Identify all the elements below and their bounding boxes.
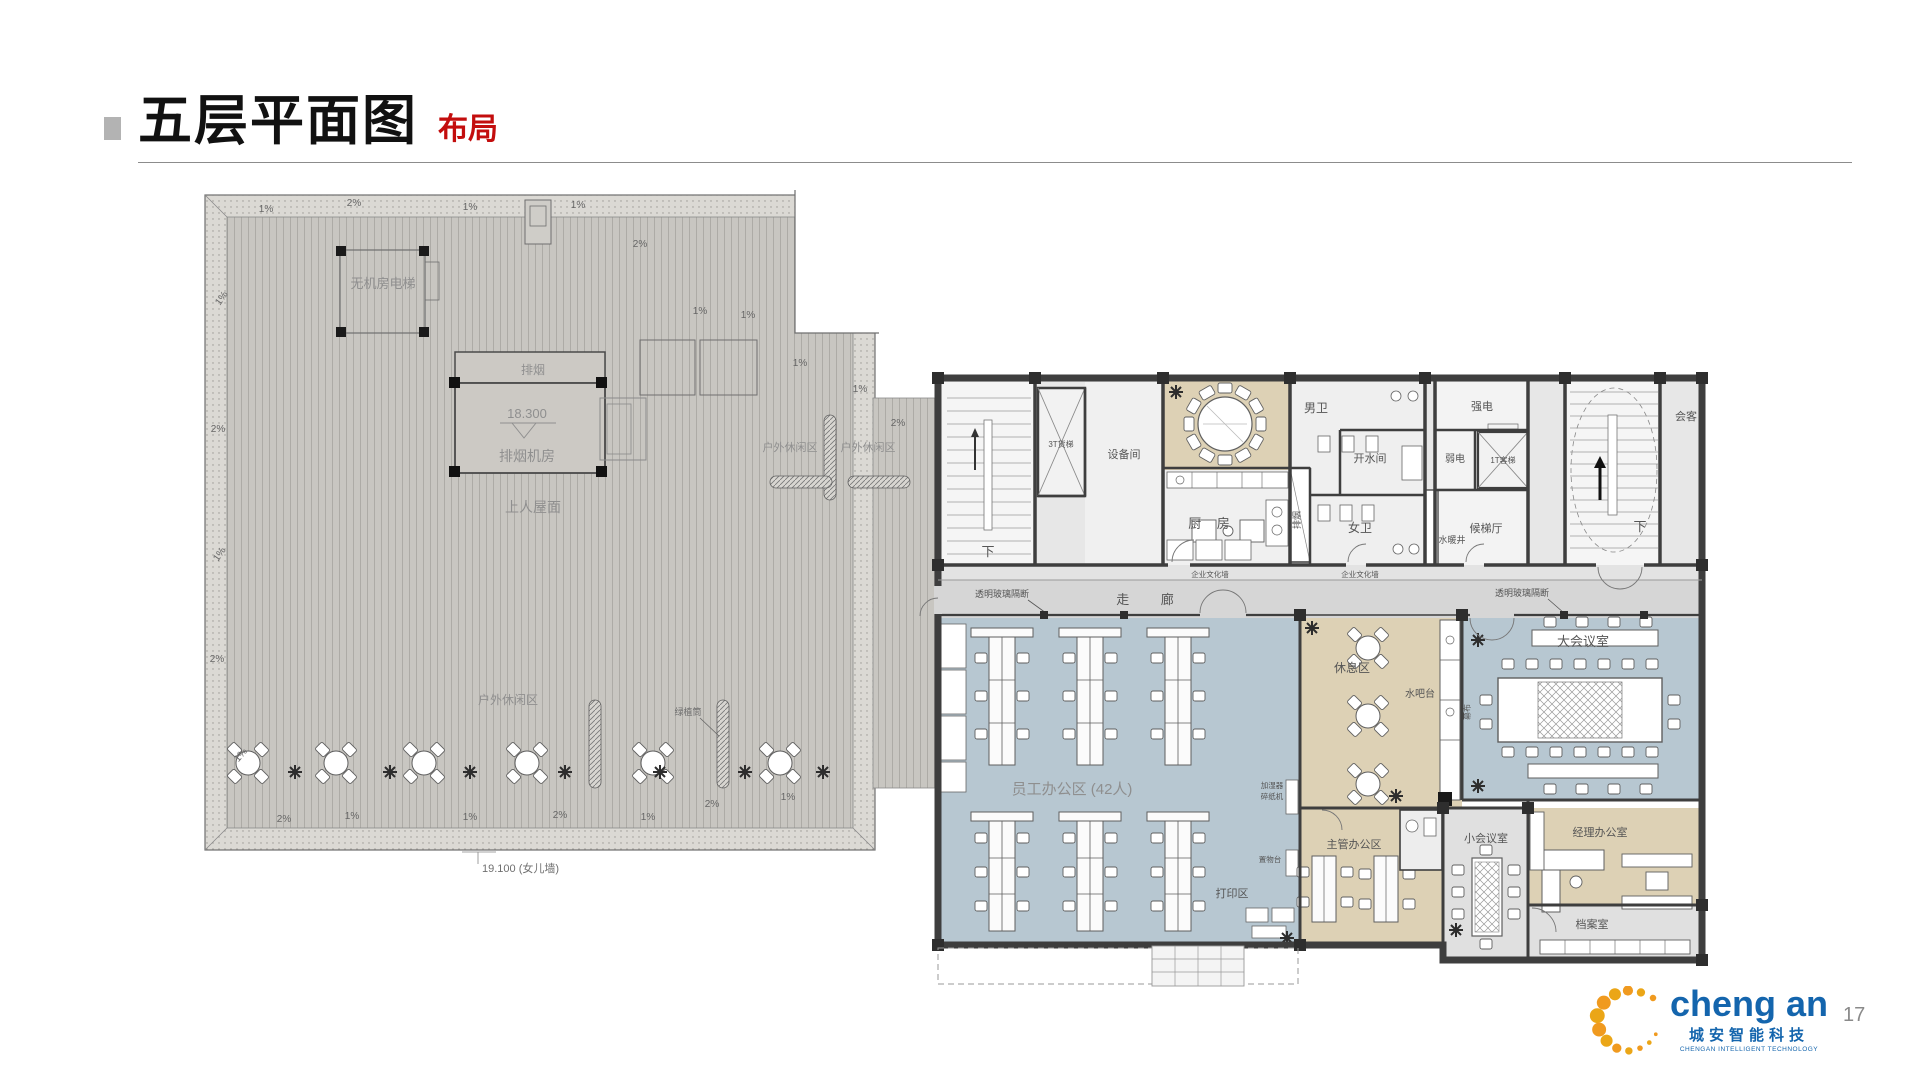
room-label-smoke-vent: 排烟 — [521, 363, 545, 377]
slope-label: 1% — [259, 204, 274, 215]
planter-strip — [848, 476, 910, 488]
parapet-elevation-label: 19.100 (女儿墙) — [482, 861, 559, 875]
room-label-smoke-room: 排烟机房 — [499, 448, 555, 464]
room-label-freight-elevator: 3T货梯 — [1048, 439, 1073, 449]
roof-terrace: 无机房电梯 排烟 18.300 排烟机房 上人屋面 户外休闲区 户外休 — [205, 189, 942, 875]
slope-label: 1% — [345, 811, 360, 822]
room-label-rest-area: 休息区 — [1334, 660, 1370, 675]
slide: 五层平面图 布局 — [0, 0, 1920, 1080]
planter-label: 绿植筒 — [674, 706, 701, 717]
room-label-mrl-elevator: 无机房电梯 — [350, 276, 415, 291]
slope-label: 1% — [641, 812, 656, 823]
room-label-hot-water: 开水间 — [1354, 452, 1387, 465]
lower-parapet — [938, 946, 1298, 986]
slope-label: 1% — [463, 812, 478, 823]
slope-label: 2% — [891, 418, 906, 429]
roof-walkable-label: 上人屋面 — [505, 499, 561, 515]
planter-strip — [770, 476, 832, 488]
room-label-mens-wc: 男卫 — [1304, 401, 1328, 415]
stairs-down-label: 下 — [981, 544, 994, 559]
slope-label: 2% — [347, 198, 362, 209]
culture-wall-label: 企业文化墙 — [1341, 569, 1379, 579]
slope-label: 1% — [463, 202, 478, 213]
equip-label-humidifier: 加湿器 — [1261, 780, 1284, 790]
slope-label: 1% — [853, 384, 868, 395]
outdoor-leisure-label: 户外休闲区 — [478, 692, 538, 707]
room-label-strong-power: 强电 — [1471, 400, 1493, 413]
room-label-large-meeting: 大会议室 — [1557, 634, 1609, 649]
logo-company-cn: 城安智能科技 — [1689, 1024, 1809, 1045]
outdoor-leisure-label: 户外休闲区 — [841, 440, 896, 454]
room-label-print-area: 打印区 — [1216, 886, 1249, 900]
room-label-manager: 经理办公室 — [1573, 825, 1628, 839]
roof-extension — [873, 398, 942, 788]
slope-label: 2% — [210, 654, 225, 665]
room-label-equipment: 设备间 — [1108, 447, 1141, 461]
outdoor-leisure-label: 户外休闲区 — [763, 440, 818, 454]
reception-label: 会客 — [1675, 409, 1697, 423]
roof-elevation-label: 18.300 — [507, 406, 547, 421]
stairs-down-label: 下 — [1633, 519, 1646, 534]
room-label-elevator-lobby: 候梯厅 — [1470, 521, 1503, 535]
room-label-weak-power: 弱电 — [1445, 452, 1465, 465]
slope-label: 1% — [741, 310, 756, 321]
room-label-passenger-elevator: 1T客梯 — [1490, 455, 1515, 465]
culture-wall-label: 企业文化墙 — [1191, 569, 1229, 579]
room-label-staff-office: 员工办公区 (42人) — [1012, 781, 1133, 798]
office-floor: 3T货梯 设备间 — [920, 372, 1708, 986]
room-label-womens-wc: 女卫 — [1348, 520, 1372, 535]
slope-label: 1% — [781, 792, 796, 803]
logo-swirl-icon — [1588, 986, 1666, 1062]
slope-label: 2% — [211, 424, 226, 435]
slope-label: 2% — [633, 239, 648, 250]
corridor-area — [938, 580, 1702, 618]
floor-plan: 无机房电梯 排烟 18.300 排烟机房 上人屋面 户外休闲区 户外休 — [0, 0, 1920, 1080]
page-number: 17 — [1843, 1004, 1865, 1027]
rest-area — [1300, 618, 1462, 808]
smoke-duct: 排烟 — [1290, 468, 1310, 562]
slope-label: 2% — [553, 810, 568, 821]
parapet-elevation-callout: 19.100 (女儿墙) — [462, 852, 559, 875]
equip-label-shredder: 碎纸机 — [1261, 791, 1284, 801]
freight-elevator: 3T货梯 — [1038, 388, 1085, 496]
room-label-small-meeting: 小会议室 — [1464, 831, 1508, 845]
room-label-archive: 档案室 — [1576, 917, 1609, 931]
logo-brand-text: cheng an — [1670, 986, 1828, 1022]
roof-hatch-box — [525, 200, 551, 244]
equip-label-shelf: 置物台 — [1259, 854, 1282, 864]
duct-label-smoke: 排烟 — [1291, 511, 1302, 529]
room-label-water-bar: 水吧台 — [1405, 687, 1435, 700]
room-label-supervisor: 主管办公区 — [1327, 837, 1382, 851]
corridor-label: 走 廊 — [1116, 592, 1188, 607]
slope-label: 2% — [705, 799, 720, 810]
glass-partition-label: 透明玻璃隔断 — [975, 588, 1029, 599]
room-label-plumbing-shaft: 水暖井 — [1438, 534, 1465, 545]
slope-label: 2% — [277, 814, 292, 825]
slope-label: 1% — [793, 358, 808, 369]
slope-label: 1% — [571, 200, 586, 211]
company-logo: cheng an 城安智能科技 CHENGAN INTELLIGENT TECH… — [1588, 986, 1828, 1062]
slope-label: 1% — [693, 306, 708, 317]
room-label-kitchen: 厨 房 — [1188, 516, 1236, 531]
logo-company-en: CHENGAN INTELLIGENT TECHNOLOGY — [1680, 1046, 1818, 1053]
glass-partition-label: 透明玻璃隔断 — [1495, 587, 1549, 598]
